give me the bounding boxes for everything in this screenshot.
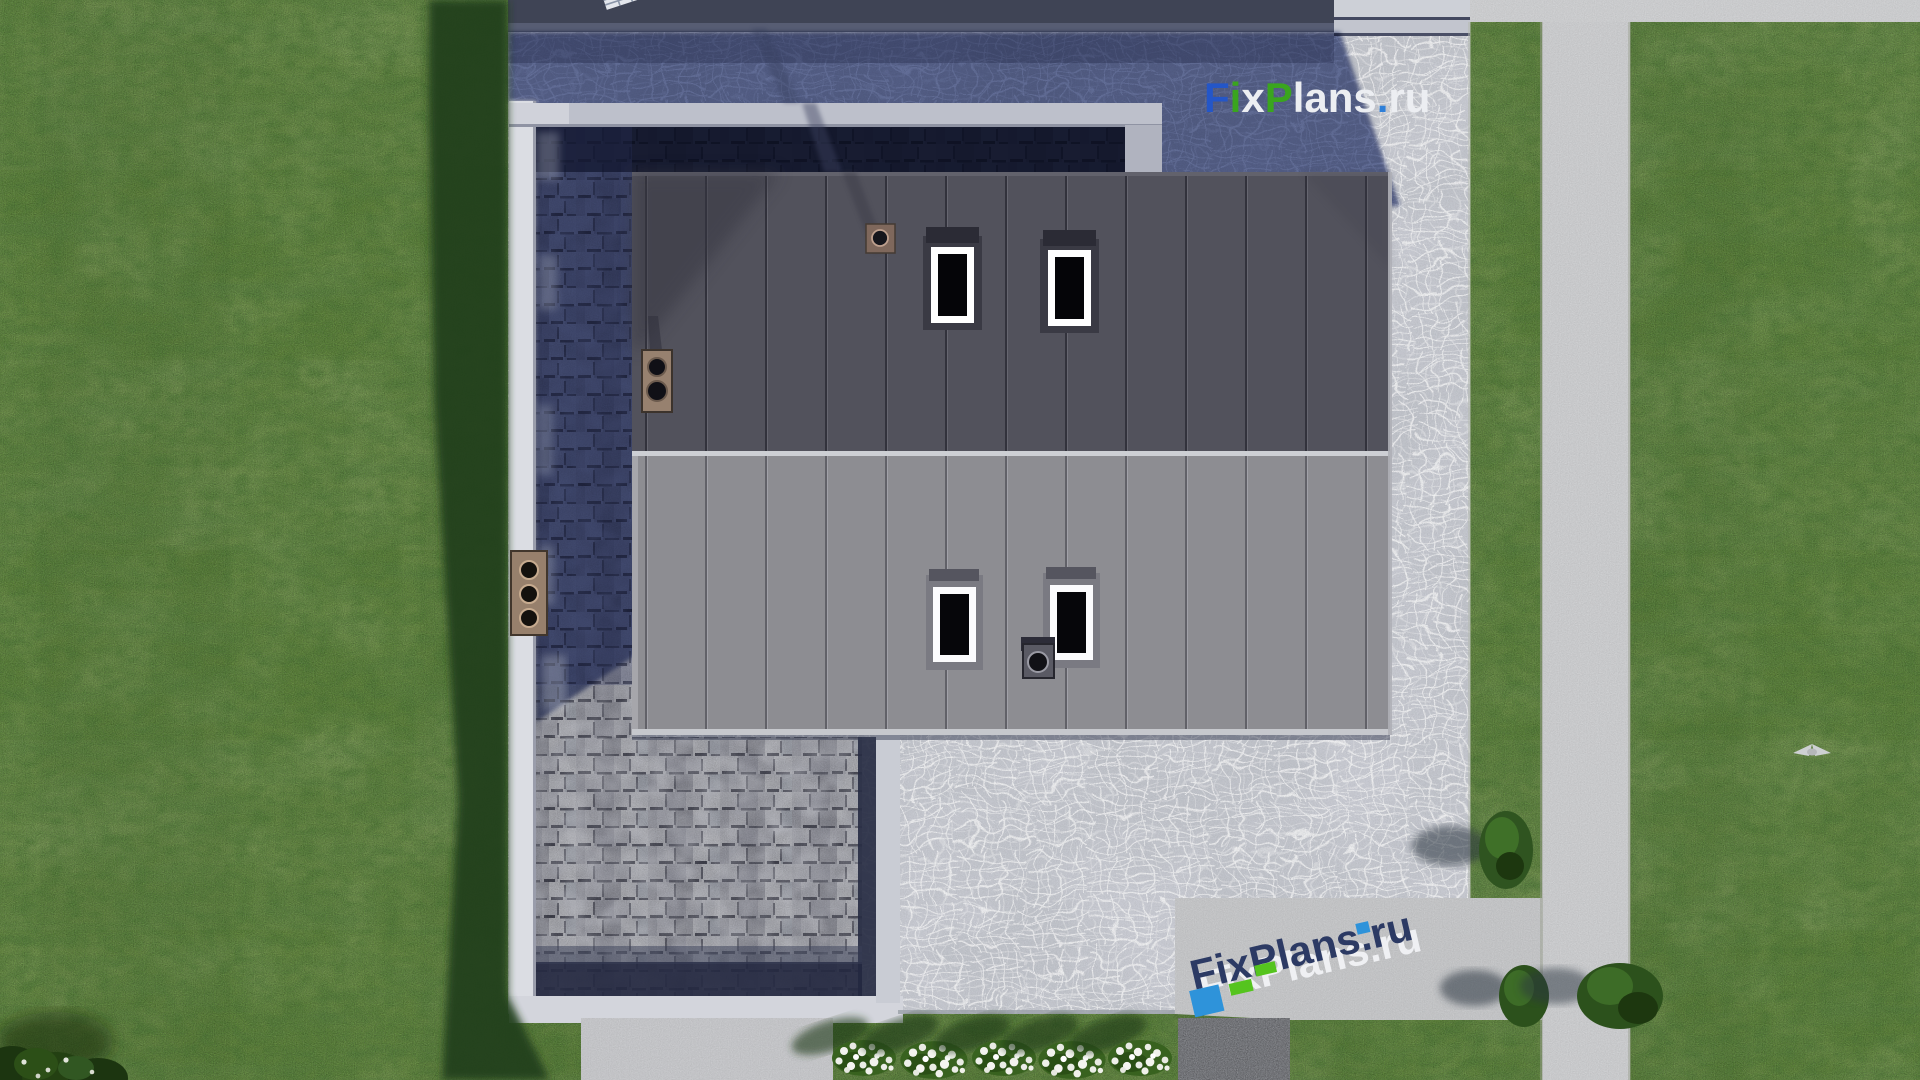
- svg-text:FixPlans.ru: FixPlans.ru: [1204, 74, 1430, 121]
